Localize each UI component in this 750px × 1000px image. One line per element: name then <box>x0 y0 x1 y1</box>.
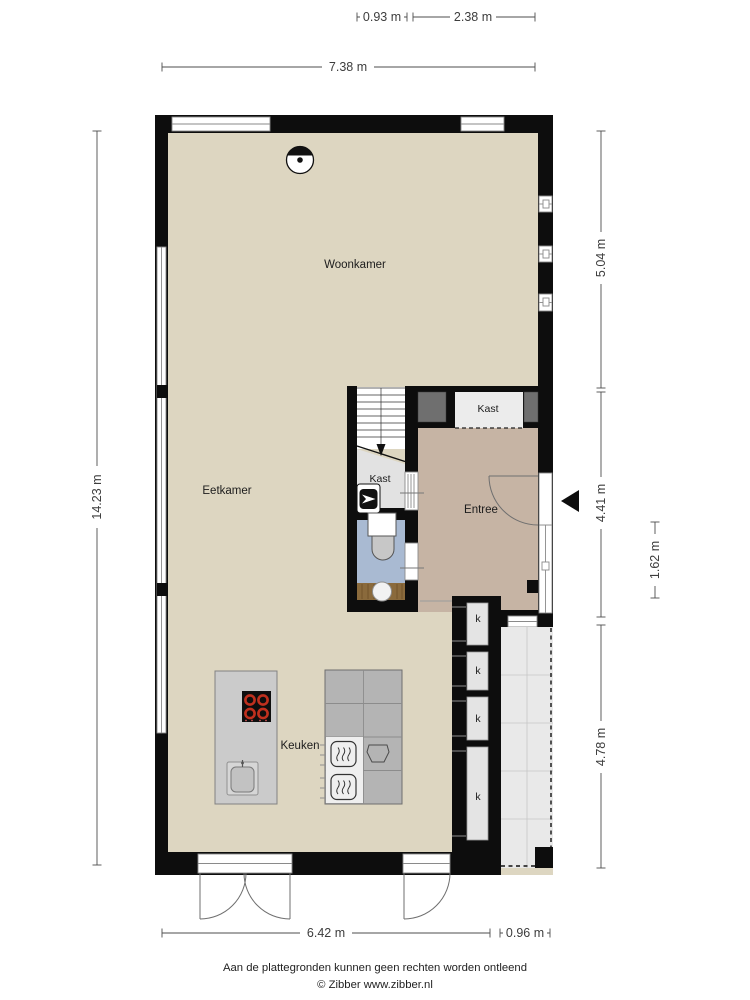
svg-text:2.38 m: 2.38 m <box>454 10 492 24</box>
dimension-right-door-section: 1.62 m <box>647 522 663 598</box>
label-entree: Entree <box>464 504 498 516</box>
island-sink-icon <box>227 760 258 795</box>
toilet-bowl-icon <box>372 536 394 560</box>
window-right-2 <box>539 246 552 262</box>
floorplan-canvas: Woonkamer Eetkamer Keuken Entree Kast Ka… <box>0 0 750 1000</box>
toilet-door <box>405 543 418 580</box>
footer: Aan de plattegronden kunnen geen rechten… <box>223 962 527 991</box>
french-door-swing-right <box>244 873 290 919</box>
svg-text:14.23 m: 14.23 m <box>90 474 104 519</box>
label-woonkamer: Woonkamer <box>324 259 386 271</box>
dimension-right-patio: 4.78 m <box>593 625 609 868</box>
floorplan-page: Woonkamer Eetkamer Keuken Entree Kast Ka… <box>0 0 750 1000</box>
patio <box>501 627 553 868</box>
wall-entree-stub <box>527 580 538 593</box>
mv-unit-icon <box>357 484 380 513</box>
washbasin-icon <box>373 582 392 601</box>
toilet-cistern-icon <box>368 513 396 536</box>
svg-text:1.62 m: 1.62 m <box>648 541 662 579</box>
svg-text:0.96 m: 0.96 m <box>506 926 544 940</box>
dimension-top-entree: 2.38 m <box>413 10 535 25</box>
label-eetkamer: Eetkamer <box>202 485 251 497</box>
dimension-left-total: 14.23 m <box>89 131 105 865</box>
dimension-bottom-main: 6.42 m <box>162 926 490 941</box>
back-door-swing <box>404 873 450 919</box>
entrance-arrow-icon <box>561 490 579 512</box>
label-closet-2: k <box>475 665 481 677</box>
svg-text:4.41 m: 4.41 m <box>594 484 608 522</box>
svg-text:7.38 m: 7.38 m <box>329 60 367 74</box>
dimension-top-total: 7.38 m <box>162 60 535 75</box>
dimension-top-stairs: 0.93 m <box>357 10 407 25</box>
label-keuken: Keuken <box>280 740 319 752</box>
svg-text:6.42 m: 6.42 m <box>307 926 345 940</box>
window-right-1 <box>539 196 552 212</box>
label-kast-stairs: Kast <box>369 473 390 485</box>
label-closet-3: k <box>475 713 481 725</box>
label-closet-1: k <box>475 613 481 625</box>
front-door <box>539 473 552 525</box>
wall-toilet-bottom <box>347 600 418 612</box>
label-kast-hall: Kast <box>477 403 498 415</box>
svg-text:4.78 m: 4.78 m <box>594 728 608 766</box>
french-door-swing-left <box>200 873 246 919</box>
label-closet-4: k <box>475 791 481 803</box>
cabinet-dark-right <box>524 392 538 422</box>
cooktop-icon <box>242 691 271 722</box>
wall-stair-left <box>347 386 357 612</box>
footer-copyright: © Zibber www.zibber.nl <box>317 979 433 991</box>
footer-disclaimer: Aan de plattegronden kunnen geen rechten… <box>223 962 527 974</box>
dimension-right-woonkamer: 5.04 m <box>593 131 609 388</box>
closet-louver-door <box>405 472 418 510</box>
window-right-3 <box>539 294 552 311</box>
dimension-right-entree: 4.41 m <box>593 392 609 617</box>
cabinet-dark-left <box>418 392 446 422</box>
dimension-bottom-patio: 0.96 m <box>500 926 550 941</box>
flue-icon <box>287 147 314 174</box>
svg-text:0.93 m: 0.93 m <box>363 10 401 24</box>
svg-text:5.04 m: 5.04 m <box>594 239 608 277</box>
